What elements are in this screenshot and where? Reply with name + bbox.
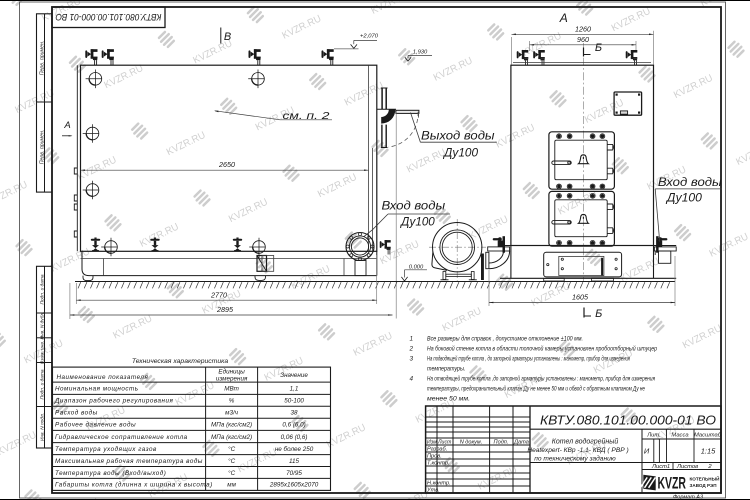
svg-text:И: И [644,447,650,456]
svg-text:°С: °С [228,457,236,465]
svg-text:Перв. примен.: Перв. примен. [40,130,46,164]
svg-text:2895х1605х2070: 2895х1605х2070 [269,482,319,489]
svg-text:МВт: МВт [224,386,239,393]
svg-text:Heatexpert- КВр -1,1- КВД ( РВ: Heatexpert- КВр -1,1- КВД ( РВР ) [527,447,628,454]
svg-text:по техническому заданию: по техническому заданию [534,454,616,462]
svg-text:КВТУ.080.101.00.000-01 ВО: КВТУ.080.101.00.000-01 ВО [56,12,162,22]
svg-text:не более 250: не более 250 [275,445,314,453]
svg-text:Техническая характеристика: Техническая характеристика [132,358,228,365]
svg-text:Разраб.: Разраб. [427,447,447,453]
svg-text:Все размеры для справок , допу: Все размеры для справок , допустимое отк… [427,335,583,343]
svg-text:Вход воды: Вход воды [382,201,446,213]
svg-text:Гидравлическое сопративление к: Гидравлическое сопративление котла [55,433,188,441]
svg-text:%: % [229,398,235,405]
svg-text:Вход воды: Вход воды [658,177,722,189]
svg-text:Подп. и дата: Подп. и дата [40,274,46,304]
svg-text:1: 1 [409,336,413,343]
svg-text:Расход воды: Расход воды [55,409,98,417]
svg-text:Подп.: Подп. [494,440,509,446]
svg-text:Масштаб: Масштаб [694,433,722,439]
svg-text:1: 1 [667,464,670,470]
svg-text:Значение: Значение [280,372,308,379]
svg-text:Изм: Изм [427,439,437,445]
svg-text:температуры.: температуры. [427,366,466,373]
svg-text:Б: Б [595,308,602,320]
svg-text:960: 960 [577,35,589,44]
svg-text:1:15: 1:15 [701,447,716,456]
svg-text:1,930: 1,930 [413,50,428,56]
svg-text:МПа (кгс/см2): МПа (кгс/см2) [211,422,252,429]
svg-text:Пров.: Пров. [427,454,442,460]
svg-text:Подп. и дата: Подп. и дата [40,369,46,399]
svg-text:Габариты котла (длинна х ширин: Габариты котла (длинна х ширина х высота… [55,481,213,489]
svg-text:ЗАВОД РЭП: ЗАВОД РЭП [690,483,717,488]
svg-text:Номинальная мощность: Номинальная мощность [55,386,139,393]
svg-text:В: В [224,31,231,43]
svg-text:Н.контр.: Н.контр. [427,481,451,487]
svg-text:КОТЕЛЬНЫЙ: КОТЕЛЬНЫЙ [690,475,720,482]
svg-text:На отводящей трубе котла ,до з: На отводящей трубе котла ,до запорной ар… [427,375,655,383]
svg-text:+2,070: +2,070 [360,34,379,40]
svg-text:2770: 2770 [210,290,227,299]
svg-text:0.000: 0.000 [409,264,424,270]
svg-text:см. п. 2: см. п. 2 [283,110,330,122]
svg-text:KVZR: KVZR [658,475,687,493]
svg-text:Инв. N подл.: Инв. N подл. [40,413,46,441]
svg-text:Выход воды: Выход воды [421,130,495,142]
svg-text:Лист: Лист [437,439,452,445]
svg-text:1,1: 1,1 [290,386,299,393]
svg-text:температуры, предохранительный: температуры, предохранительный клапан Ду… [427,385,645,393]
svg-text:КВТУ.080.101.00.000-01 ВО: КВТУ.080.101.00.000-01 ВО [540,413,716,428]
svg-text:115: 115 [289,458,300,465]
svg-text:4: 4 [409,376,413,383]
svg-text:Взам. инв. N: Взам. инв. N [40,336,46,364]
svg-text:Инв. N дубл.: Инв. N дубл. [40,312,46,340]
svg-text:1605: 1605 [572,293,589,302]
svg-text:Единицы: Единицы [218,367,245,375]
svg-text:Лист: Лист [651,464,667,470]
svg-text:На боковой стенке котла в обла: На боковой стенке котла в области топочн… [427,345,657,353]
svg-text:1260: 1260 [575,24,591,33]
svg-text:Формат А3: Формат А3 [673,495,704,500]
svg-text:Температура уходящих газов: Температура уходящих газов [55,445,157,453]
svg-text:2895: 2895 [216,305,234,314]
svg-text:50-100: 50-100 [284,398,304,405]
svg-text:А: А [63,120,70,131]
svg-text:Утв.: Утв. [426,488,440,494]
svg-text:2: 2 [408,346,413,353]
svg-text:2650: 2650 [218,160,235,169]
svg-text:Максимальная рабочая температу: Максимальная рабочая температура воды [55,457,203,465]
svg-text:Листов: Листов [676,464,698,470]
svg-text:Т.контр.: Т.контр. [427,461,450,467]
svg-text:0,06 (0,6): 0,06 (0,6) [281,434,308,441]
svg-text:На подводящей трубе котла ,: На подводящей трубе котла , до запорной … [427,355,630,363]
svg-text:Дата: Дата [513,440,529,446]
svg-text:70/95: 70/95 [286,470,302,477]
svg-text:А: А [559,11,568,25]
svg-text:м3/ч: м3/ч [225,410,239,417]
svg-text:Б: Б [595,42,602,54]
svg-text:Котел водогрейный: Котел водогрейный [552,438,619,446]
svg-text:N докум.: N докум. [460,440,483,446]
svg-text:Ду100: Ду100 [442,145,478,159]
svg-text:Диапазон рабочего регулировани: Диапазон рабочего регулирования [54,397,173,405]
svg-text:менее 50 мм.: менее 50 мм. [427,396,470,403]
svg-text:Температура воды (Вход/выход): Температура воды (Вход/выход) [55,469,166,477]
svg-text:Лит.: Лит. [646,433,661,439]
svg-text:Ду100: Ду100 [399,217,435,229]
svg-text:°С: °С [228,445,236,453]
svg-text:МПа (кгс/см2): МПа (кгс/см2) [211,434,252,441]
svg-text:Ду100: Ду100 [665,193,703,205]
svg-text:Рабочее давление воды: Рабочее давление воды [55,421,136,429]
svg-text:Перв. примен.: Перв. примен. [40,41,46,75]
svg-text:°С: °С [228,469,236,477]
svg-text:Наименование показателя: Наименование показателя [57,374,149,381]
svg-text:мм: мм [227,482,236,489]
svg-text:3: 3 [409,356,413,363]
svg-text:38: 38 [291,410,299,417]
svg-text:измерения: измерения [216,375,248,382]
svg-text:Масса: Масса [671,433,689,439]
svg-text:0,6 (6,0): 0,6 (6,0) [282,422,305,429]
